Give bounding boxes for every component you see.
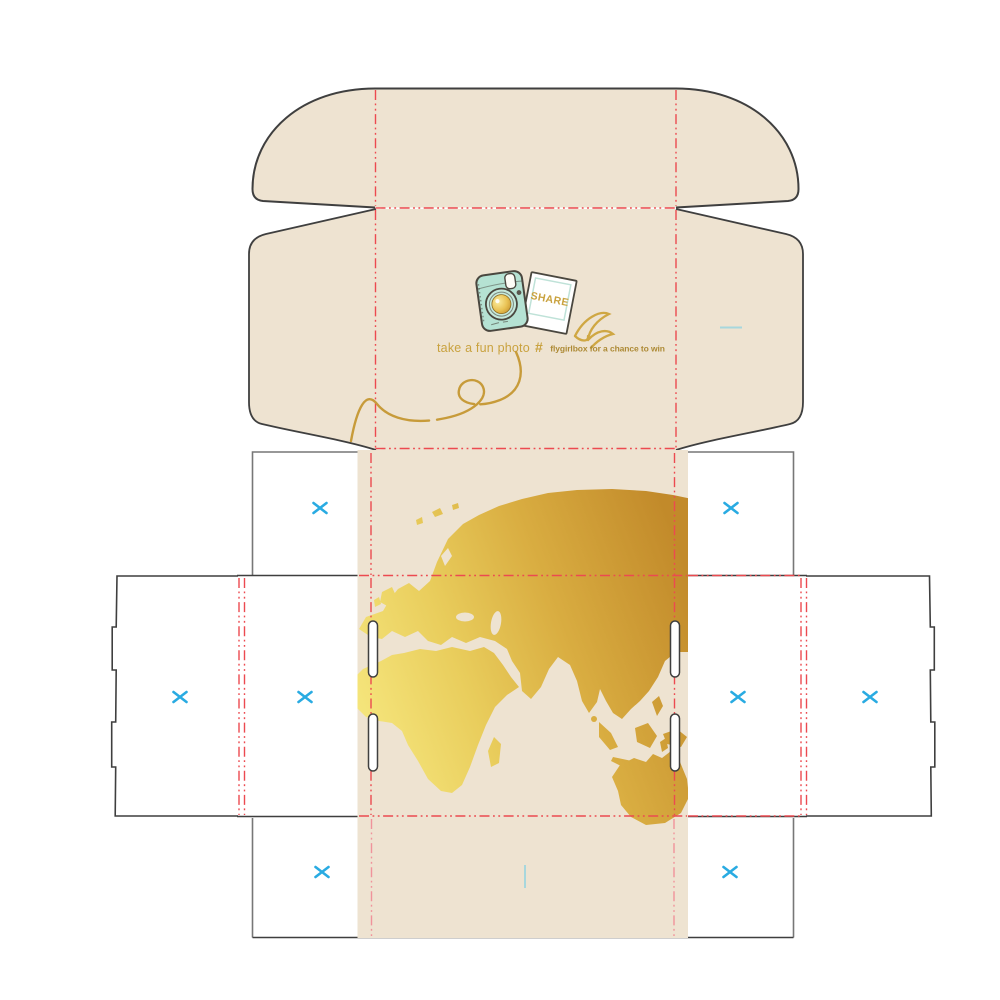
end-flap-left [112,576,238,816]
slot-cutout [671,621,680,677]
box-dieline-svg: SHARE take a fun photo # flygirlbox for … [0,0,1000,1000]
fold-hinge-right [801,578,807,815]
side-wall-right [688,577,800,817]
slot-cutout [369,621,378,677]
slot-cutout [369,714,378,771]
lid-panel [249,209,803,450]
dust-flap-lower-right [676,818,794,938]
dust-flap-lower-left [253,818,375,938]
hashtag-caption: flygirlbox for a chance to win [550,344,665,354]
camera-flash [504,273,516,289]
polaroid-photo-icon: SHARE [521,272,576,334]
dieline-canvas: SHARE take a fun photo # flygirlbox for … [0,0,1000,1000]
map-black-sea [456,613,474,622]
hashtag-symbol: # [535,339,543,355]
side-wall-left [243,577,358,817]
slot-cutout [671,714,680,771]
map-sri-lanka [591,716,597,722]
top-tuck-flap [253,89,799,208]
dust-flap-upper-right [676,452,794,576]
instant-camera-icon [475,270,528,332]
